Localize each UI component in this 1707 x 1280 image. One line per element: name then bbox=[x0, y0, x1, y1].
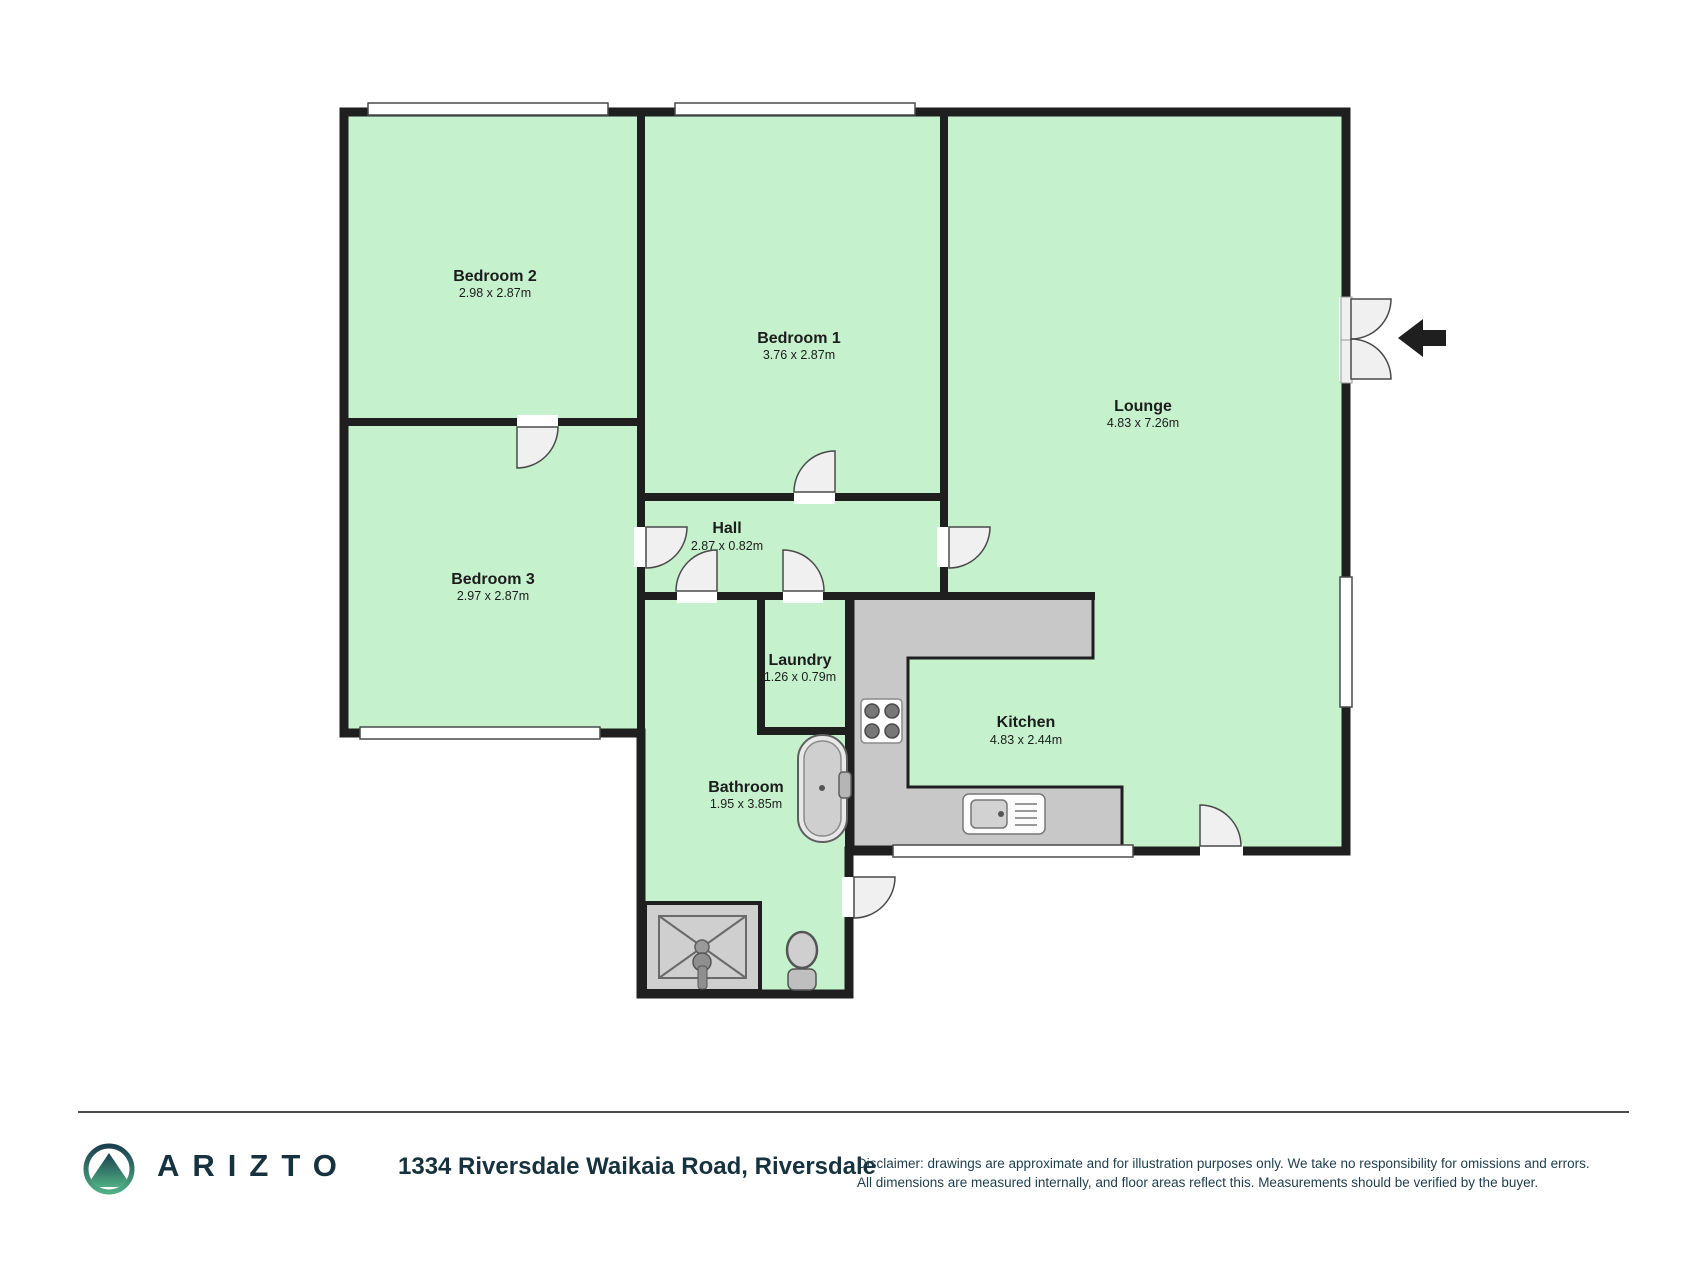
floorplan-page: Bedroom 2 2.98 x 2.87m Bedroom 1 3.76 x … bbox=[0, 0, 1707, 1280]
property-address: 1334 Riversdale Waikaia Road, Riversdale bbox=[398, 1153, 876, 1181]
toilet-icon bbox=[787, 932, 817, 990]
room-dims: 3.76 x 2.87m bbox=[763, 348, 835, 362]
room-dims: 4.83 x 7.26m bbox=[1107, 416, 1179, 430]
arizto-logo-icon bbox=[83, 1142, 135, 1196]
room-label: Laundry bbox=[768, 652, 831, 669]
room-label: Kitchen bbox=[997, 714, 1056, 731]
window bbox=[893, 845, 1133, 857]
room-label: Lounge bbox=[1114, 398, 1172, 415]
room-label: Bedroom 1 bbox=[757, 330, 841, 347]
floorplan: Bedroom 2 2.98 x 2.87m Bedroom 1 3.76 x … bbox=[0, 0, 1707, 1280]
footer-divider bbox=[78, 1111, 1629, 1113]
shower-icon bbox=[645, 903, 760, 991]
disclaimer-line-1: Disclaimer: drawings are approximate and… bbox=[857, 1154, 1590, 1173]
room-dims: 2.98 x 2.87m bbox=[459, 286, 531, 300]
room-dims: 4.83 x 2.44m bbox=[990, 733, 1062, 747]
entry-door-swing bbox=[1351, 299, 1391, 339]
disclaimer-text: Disclaimer: drawings are approximate and… bbox=[857, 1154, 1590, 1192]
bathtub-icon bbox=[798, 735, 851, 842]
room-dims: 1.26 x 0.79m bbox=[764, 670, 836, 684]
room-dims: 2.97 x 2.87m bbox=[457, 589, 529, 603]
door-swing bbox=[854, 877, 895, 918]
window bbox=[368, 103, 608, 115]
entry-door-swing bbox=[1351, 339, 1391, 379]
room-label: Hall bbox=[712, 520, 741, 537]
stove-icon bbox=[861, 699, 902, 743]
kitchen-sink-icon bbox=[963, 794, 1045, 834]
room-label: Bathroom bbox=[708, 779, 784, 796]
room-dims: 2.87 x 0.82m bbox=[691, 539, 763, 553]
room-label: Bedroom 2 bbox=[453, 268, 537, 285]
window bbox=[1340, 577, 1352, 707]
entry-arrow-icon bbox=[1398, 319, 1446, 357]
brand-wordmark: ARIZTO bbox=[157, 1148, 350, 1184]
room-label: Bedroom 3 bbox=[451, 571, 535, 588]
room-dims: 1.95 x 3.85m bbox=[710, 797, 782, 811]
window bbox=[675, 103, 915, 115]
window bbox=[360, 727, 600, 739]
disclaimer-line-2: All dimensions are measured internally, … bbox=[857, 1173, 1590, 1192]
